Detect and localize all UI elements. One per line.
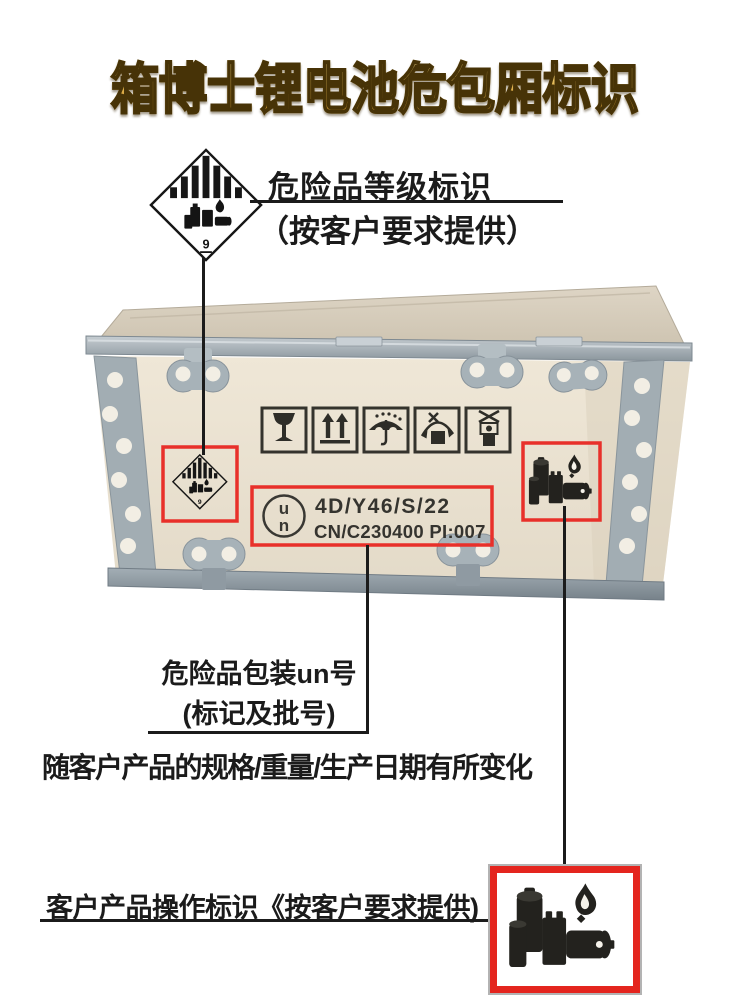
un-callout-line2: (标记及批号) xyxy=(148,692,370,731)
battery-label-box-border xyxy=(490,866,640,993)
un-letter-n: n xyxy=(279,516,289,535)
callout-underline-customer xyxy=(40,919,492,922)
battery-label-box xyxy=(488,864,642,995)
hazard-callout-line2: （按客户要求提供） xyxy=(258,206,537,251)
butterfly-clip xyxy=(548,359,608,393)
poster: 箱博士锂电池危包厢标识 9 危险品等级标识 （按客户要求提供） xyxy=(0,0,750,1000)
callout-connector-class9 xyxy=(202,258,205,455)
callout-underline-un xyxy=(148,731,369,734)
class9-digit-small: 9 xyxy=(198,499,202,506)
callout-connector-battery xyxy=(563,506,566,868)
class9-digit: 9 xyxy=(202,236,209,251)
variation-note: 随客户产品的规格/重量/生产日期有所变化 xyxy=(42,746,532,786)
hazard-callout-rule xyxy=(250,200,563,203)
un-marking-line2: CN/C230400 PI:007 xyxy=(314,521,486,542)
page-title: 箱博士锂电池危包厢标识 xyxy=(0,44,750,124)
lithium-battery-cluster-icon xyxy=(506,879,624,981)
crate-photo: 9 u n 4D/Y46/S/22 CN/C230400 PI:007 xyxy=(78,268,698,602)
un-marking-line1: 4D/Y46/S/22 xyxy=(315,495,451,518)
un-callout-line1: 危险品包装un号 xyxy=(148,652,370,691)
class9-hazard-label-icon: 9 xyxy=(147,146,265,264)
